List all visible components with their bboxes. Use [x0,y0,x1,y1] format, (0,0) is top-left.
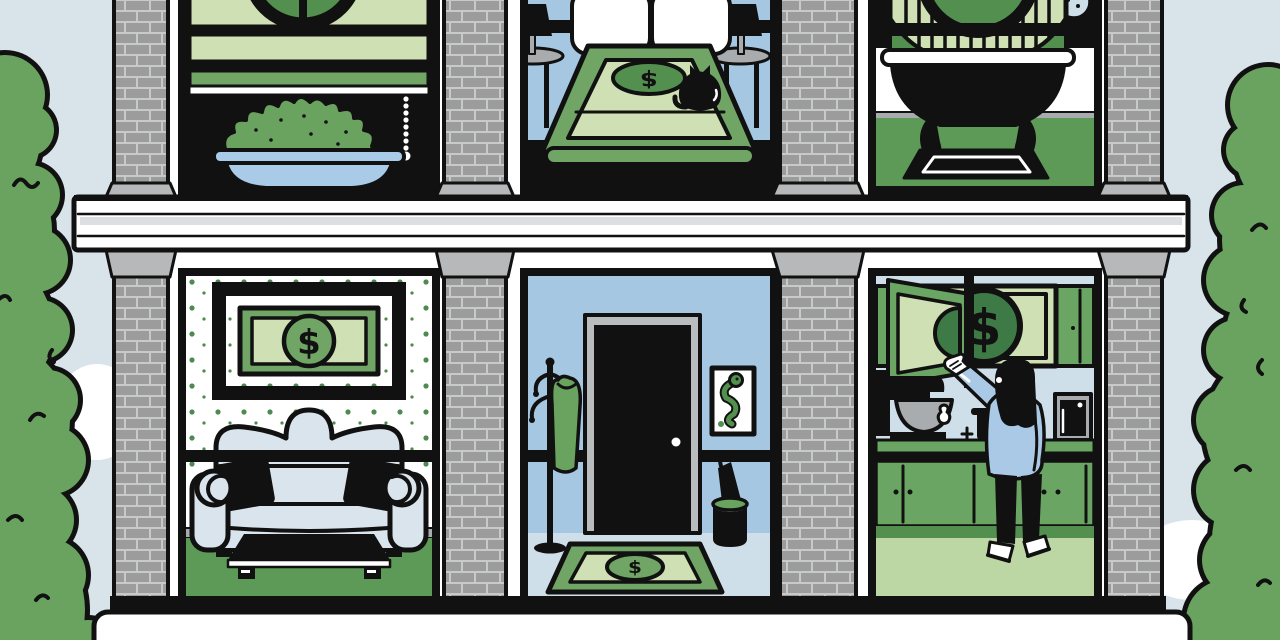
dollar-bill-doormat: $ [548,544,722,592]
soap-bottle [938,405,950,424]
bedspread-dollar-sign: $ [640,68,658,93]
tub-rim [882,50,1074,65]
door-knob [672,438,681,447]
wall-oven [1055,394,1091,440]
house-cutaway-illustration: $ [0,0,1280,640]
window-crossbar [876,23,1094,36]
building: $ [74,0,1190,640]
window-crossbar [186,450,432,462]
pants-leg [995,474,1017,544]
lower-cabinets [876,461,1094,538]
green-coat [552,376,581,472]
room-shade [186,0,432,188]
pants-leg [1021,474,1042,542]
bath-mat [904,150,1048,178]
framed-dollar-bill: $ [212,282,406,400]
hair [995,358,1037,428]
kitchen-floor [876,538,1094,600]
dollar-bill-window-shade [189,0,429,95]
base-ledge [94,612,1190,640]
ear [996,377,1002,383]
front-door [585,315,700,533]
door [594,325,691,533]
room-bedroom: $ [503,0,770,186]
room-kitchen: $ [876,276,1094,600]
wall-picture [712,368,754,434]
illustration-canvas: $ [0,0,1280,640]
room-living: $ [184,276,434,600]
room-bathroom [874,0,1096,186]
framed-dollar-sign: $ [297,323,321,363]
shade-roller [189,86,429,95]
cornice [74,195,1188,250]
room-hall: $ [528,276,770,600]
toe-kick [876,526,1094,538]
doormat-dollar-sign: $ [628,558,642,577]
